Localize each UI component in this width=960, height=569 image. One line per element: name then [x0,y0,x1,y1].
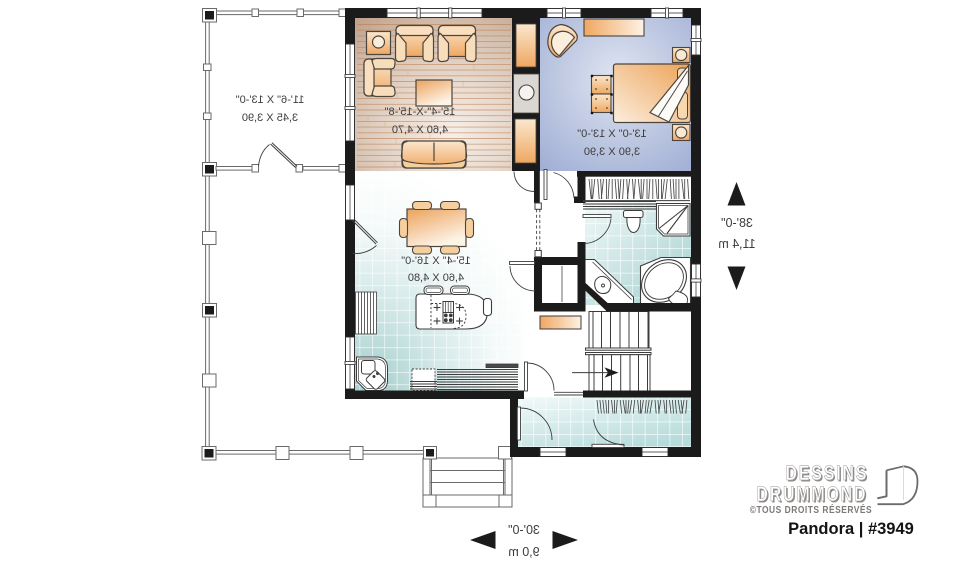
svg-text:11'-6" X 13'-0": 11'-6" X 13'-0" [236,94,305,106]
svg-text:30'-0": 30'-0" [508,523,540,537]
svg-text:Pandora | #3949: Pandora | #3949 [788,520,914,538]
svg-text:4,60 X 4,70: 4,60 X 4,70 [392,124,448,136]
svg-text:3,90 X 3,90: 3,90 X 3,90 [584,146,640,158]
svg-text:DRUMMOND: DRUMMOND [757,482,868,506]
svg-text:13'-0" X 13'-0": 13'-0" X 13'-0" [577,128,647,140]
svg-text:3,45 X 3,90: 3,45 X 3,90 [242,112,298,124]
svg-text:15'-4"-X-15'-8": 15'-4"-X-15'-8" [385,106,456,118]
svg-text:15'-4" X 16'-0": 15'-4" X 16'-0" [401,255,471,267]
svg-text:38'-0": 38'-0" [721,216,753,230]
svg-text:11,4 m: 11,4 m [718,237,755,251]
svg-text:9,0 m: 9,0 m [508,545,539,559]
svg-text:©TOUS DROITS RÉSERVÉS: ©TOUS DROITS RÉSERVÉS [750,504,872,515]
svg-text:4,60 X 4,80: 4,60 X 4,80 [408,272,464,284]
